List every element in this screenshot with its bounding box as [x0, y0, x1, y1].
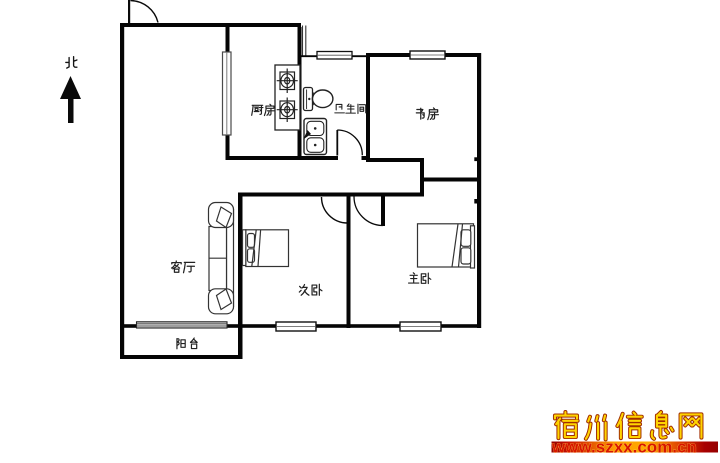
svg-text:www.szxx.com.cn: www.szxx.com.cn: [551, 438, 697, 457]
